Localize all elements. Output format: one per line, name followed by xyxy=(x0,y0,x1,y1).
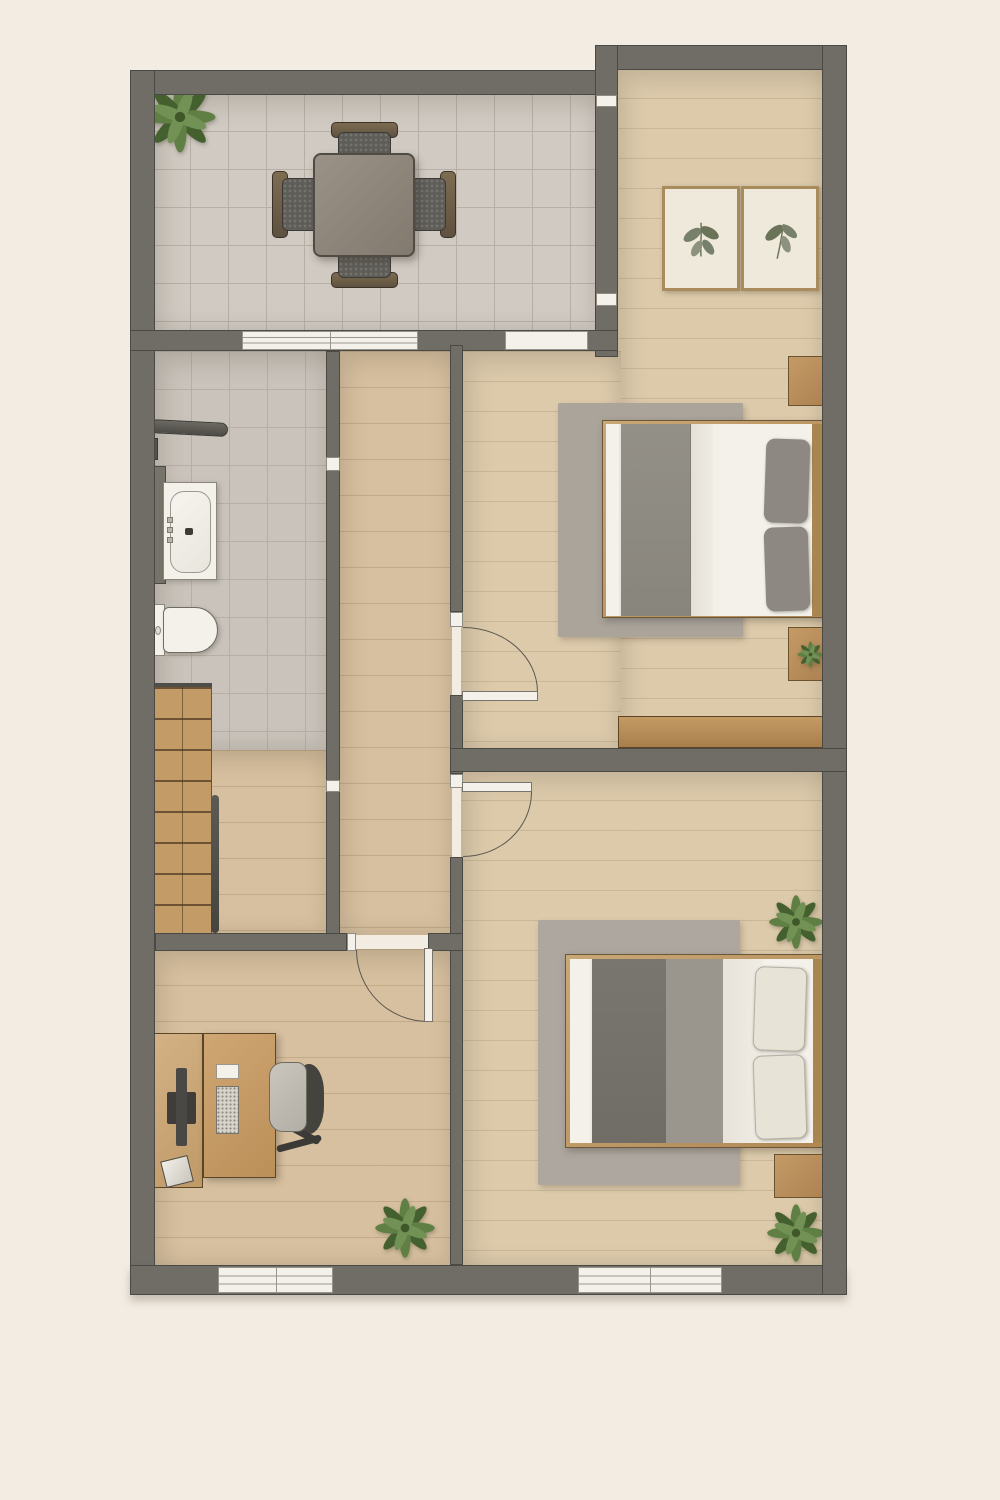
wall-art-frame-right xyxy=(741,186,819,291)
bedroom-bottom-plant-bottom-icon xyxy=(766,1203,826,1263)
wall-spine-3 xyxy=(450,857,463,1265)
door-cap-office xyxy=(347,933,356,951)
wall-office-top-left xyxy=(155,933,347,951)
toilet-bowl xyxy=(163,607,218,653)
hallway-floor xyxy=(338,351,452,935)
staircase-steps xyxy=(152,687,212,933)
bed-bottom-blanket-dark xyxy=(590,959,666,1143)
floor-plan xyxy=(0,0,1000,1500)
bathtub xyxy=(163,482,217,580)
office-desk xyxy=(203,1033,276,1178)
bathtub-control-3 xyxy=(167,537,173,543)
wall-break-2 xyxy=(596,293,617,306)
bed-bottom-blanket-mid xyxy=(666,959,723,1143)
terrace-bedroom-slider xyxy=(505,331,588,350)
door-leaf-office xyxy=(424,948,433,1022)
office-bottom-window xyxy=(218,1267,333,1293)
nightstand-plant-icon xyxy=(797,641,824,668)
bedroom-bottom-plant-top-icon xyxy=(768,894,824,950)
wall-outer-right xyxy=(822,45,847,1295)
wall-terrace-bedroom xyxy=(595,45,618,357)
pillow-gray-1 xyxy=(764,438,811,523)
bedroom-bottom-window xyxy=(578,1267,722,1293)
bathtub-control-1 xyxy=(167,517,173,523)
wall-office-top-right xyxy=(428,933,463,951)
dining-table xyxy=(313,153,415,257)
wall-break-4 xyxy=(326,780,340,792)
wall-bedroom-divider xyxy=(450,748,847,772)
bed-top-sheet-fold xyxy=(691,424,713,616)
wall-break-3 xyxy=(326,457,340,471)
bathtub-control-2 xyxy=(167,527,173,533)
wall-terrace-top xyxy=(130,70,610,95)
wall-bedroom-top xyxy=(595,45,847,70)
monitor-icon xyxy=(176,1068,187,1146)
keyboard xyxy=(216,1086,239,1134)
terrace-sliding-window xyxy=(242,331,418,350)
toilet-button xyxy=(155,626,161,635)
paper-sheet xyxy=(216,1064,239,1079)
pillow-gray-2 xyxy=(764,526,811,611)
wall-spine-1 xyxy=(450,345,463,612)
wall-bathroom-right xyxy=(326,351,340,951)
wall-break-1 xyxy=(596,95,617,107)
door-cap-bedroom-top xyxy=(450,612,463,627)
wall-outer-left xyxy=(130,70,155,1295)
bathtub-faucet xyxy=(185,528,193,535)
office-plant-icon xyxy=(374,1197,436,1259)
door-leaf-bedroom-bottom xyxy=(462,782,532,792)
bed-top-blanket xyxy=(619,424,691,616)
door-leaf-bedroom-top xyxy=(462,691,538,701)
bedroom-top-bench xyxy=(618,716,824,748)
stairs-handrail xyxy=(211,795,219,933)
wall-art-frame-left xyxy=(662,186,740,291)
office-chair-seat xyxy=(269,1062,307,1132)
bed-top xyxy=(602,420,826,618)
pillow-cream-2 xyxy=(753,1054,808,1140)
pillow-cream-1 xyxy=(753,966,808,1052)
bed-bottom xyxy=(565,954,826,1148)
